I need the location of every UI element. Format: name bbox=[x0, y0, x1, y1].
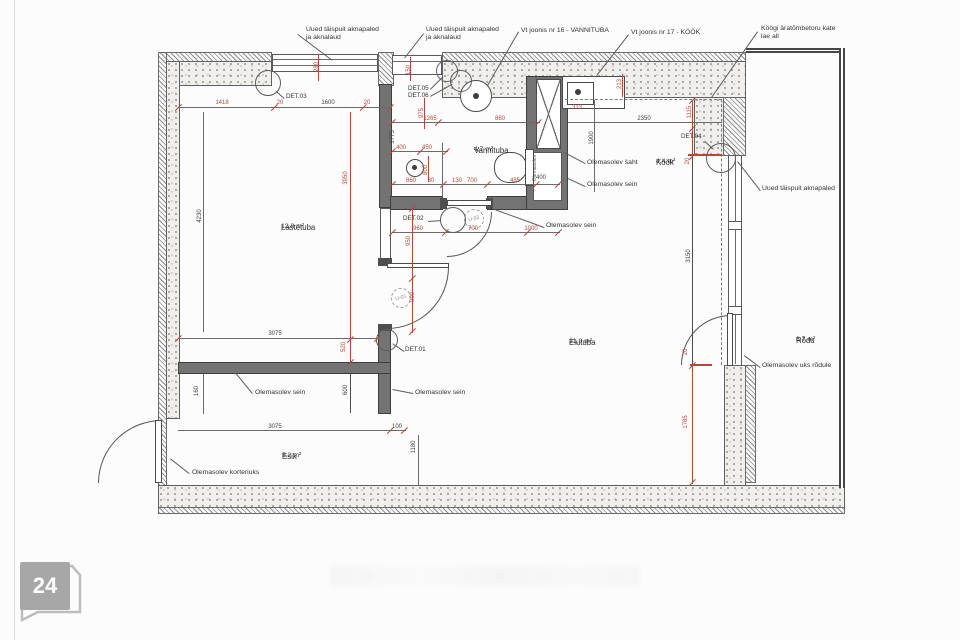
dim-tick bbox=[175, 335, 182, 342]
page-number-badge: 24 bbox=[20, 562, 70, 610]
dim-label: 700 bbox=[467, 178, 477, 184]
dim-label: 600 bbox=[343, 385, 349, 395]
dim-tick bbox=[175, 104, 182, 111]
dim-label: 3075 bbox=[268, 424, 281, 430]
dim-tick bbox=[409, 205, 416, 212]
dim-tick bbox=[689, 125, 696, 132]
dim-tick bbox=[389, 148, 396, 155]
dim-tick bbox=[347, 359, 354, 366]
dim-label: 20 bbox=[683, 349, 689, 356]
page-number: 24 bbox=[33, 573, 57, 599]
dim-label: 520 bbox=[341, 342, 347, 352]
dim-label: 400 bbox=[396, 145, 406, 151]
dim-label: 960 bbox=[413, 226, 423, 232]
dimension-layer: 1418201600202801509751265860177540045080… bbox=[0, 0, 960, 640]
dim-label: 1600 bbox=[321, 100, 334, 106]
dim-label: 800 bbox=[423, 165, 429, 175]
dim-label: 160 bbox=[194, 386, 200, 396]
dim-label: 1265 bbox=[423, 116, 436, 122]
dim-tick bbox=[555, 229, 562, 236]
dim-tick bbox=[555, 181, 562, 188]
dim-tick bbox=[409, 275, 416, 282]
dim-tick bbox=[689, 362, 696, 369]
dim-tick bbox=[443, 148, 450, 155]
dim-label: 1115 bbox=[687, 106, 693, 118]
dim-tick bbox=[389, 119, 396, 126]
dim-tick bbox=[533, 181, 540, 188]
dim-tick bbox=[389, 229, 396, 236]
dim-label: 3950 bbox=[343, 171, 349, 184]
dim-label: 860 bbox=[406, 178, 416, 184]
dim-label: 2350 bbox=[637, 116, 650, 122]
dim-tick bbox=[271, 104, 278, 111]
dim-tick bbox=[417, 148, 424, 155]
dim-label: 313 bbox=[572, 105, 582, 111]
dim-tick bbox=[689, 479, 696, 486]
dim-tick bbox=[409, 328, 416, 335]
dim-label: 1418 bbox=[215, 100, 228, 106]
dim-label: 900 bbox=[410, 292, 416, 302]
dim-label: 950 bbox=[406, 236, 412, 246]
dim-label: 1785 bbox=[683, 415, 689, 428]
dim-label: 400 bbox=[536, 175, 546, 181]
dim-tick bbox=[347, 336, 354, 343]
dim-tick bbox=[440, 181, 447, 188]
dim-label: 1900 bbox=[589, 131, 595, 144]
dim-tick bbox=[387, 104, 394, 111]
dim-tick bbox=[387, 427, 394, 434]
dim-label: 3150 bbox=[686, 249, 692, 262]
dim-label: 700 bbox=[468, 226, 478, 232]
dim-tick bbox=[442, 229, 449, 236]
dim-label: 130 bbox=[452, 178, 462, 184]
dim-label: 150 bbox=[406, 65, 412, 75]
dim-label: 30 bbox=[428, 178, 435, 184]
dim-tick bbox=[360, 104, 367, 111]
dim-label: 3075 bbox=[268, 331, 281, 337]
dim-label: 4230 bbox=[197, 209, 203, 222]
dim-tick bbox=[689, 97, 696, 104]
dim-label: 1180 bbox=[411, 441, 417, 454]
dim-tick bbox=[389, 181, 396, 188]
dim-label: 1775 bbox=[390, 130, 396, 143]
watermark bbox=[330, 566, 640, 586]
dim-label: 213 bbox=[617, 79, 623, 89]
dim-tick bbox=[535, 119, 542, 126]
dim-label: 485 bbox=[510, 178, 520, 184]
dim-tick bbox=[484, 181, 491, 188]
dim-label: 280 bbox=[314, 62, 320, 72]
dim-tick bbox=[689, 153, 696, 160]
dim-tick bbox=[374, 335, 381, 342]
floor-plan-page: U-01 U-02 bbox=[0, 0, 960, 640]
dim-label: 860 bbox=[495, 116, 505, 122]
